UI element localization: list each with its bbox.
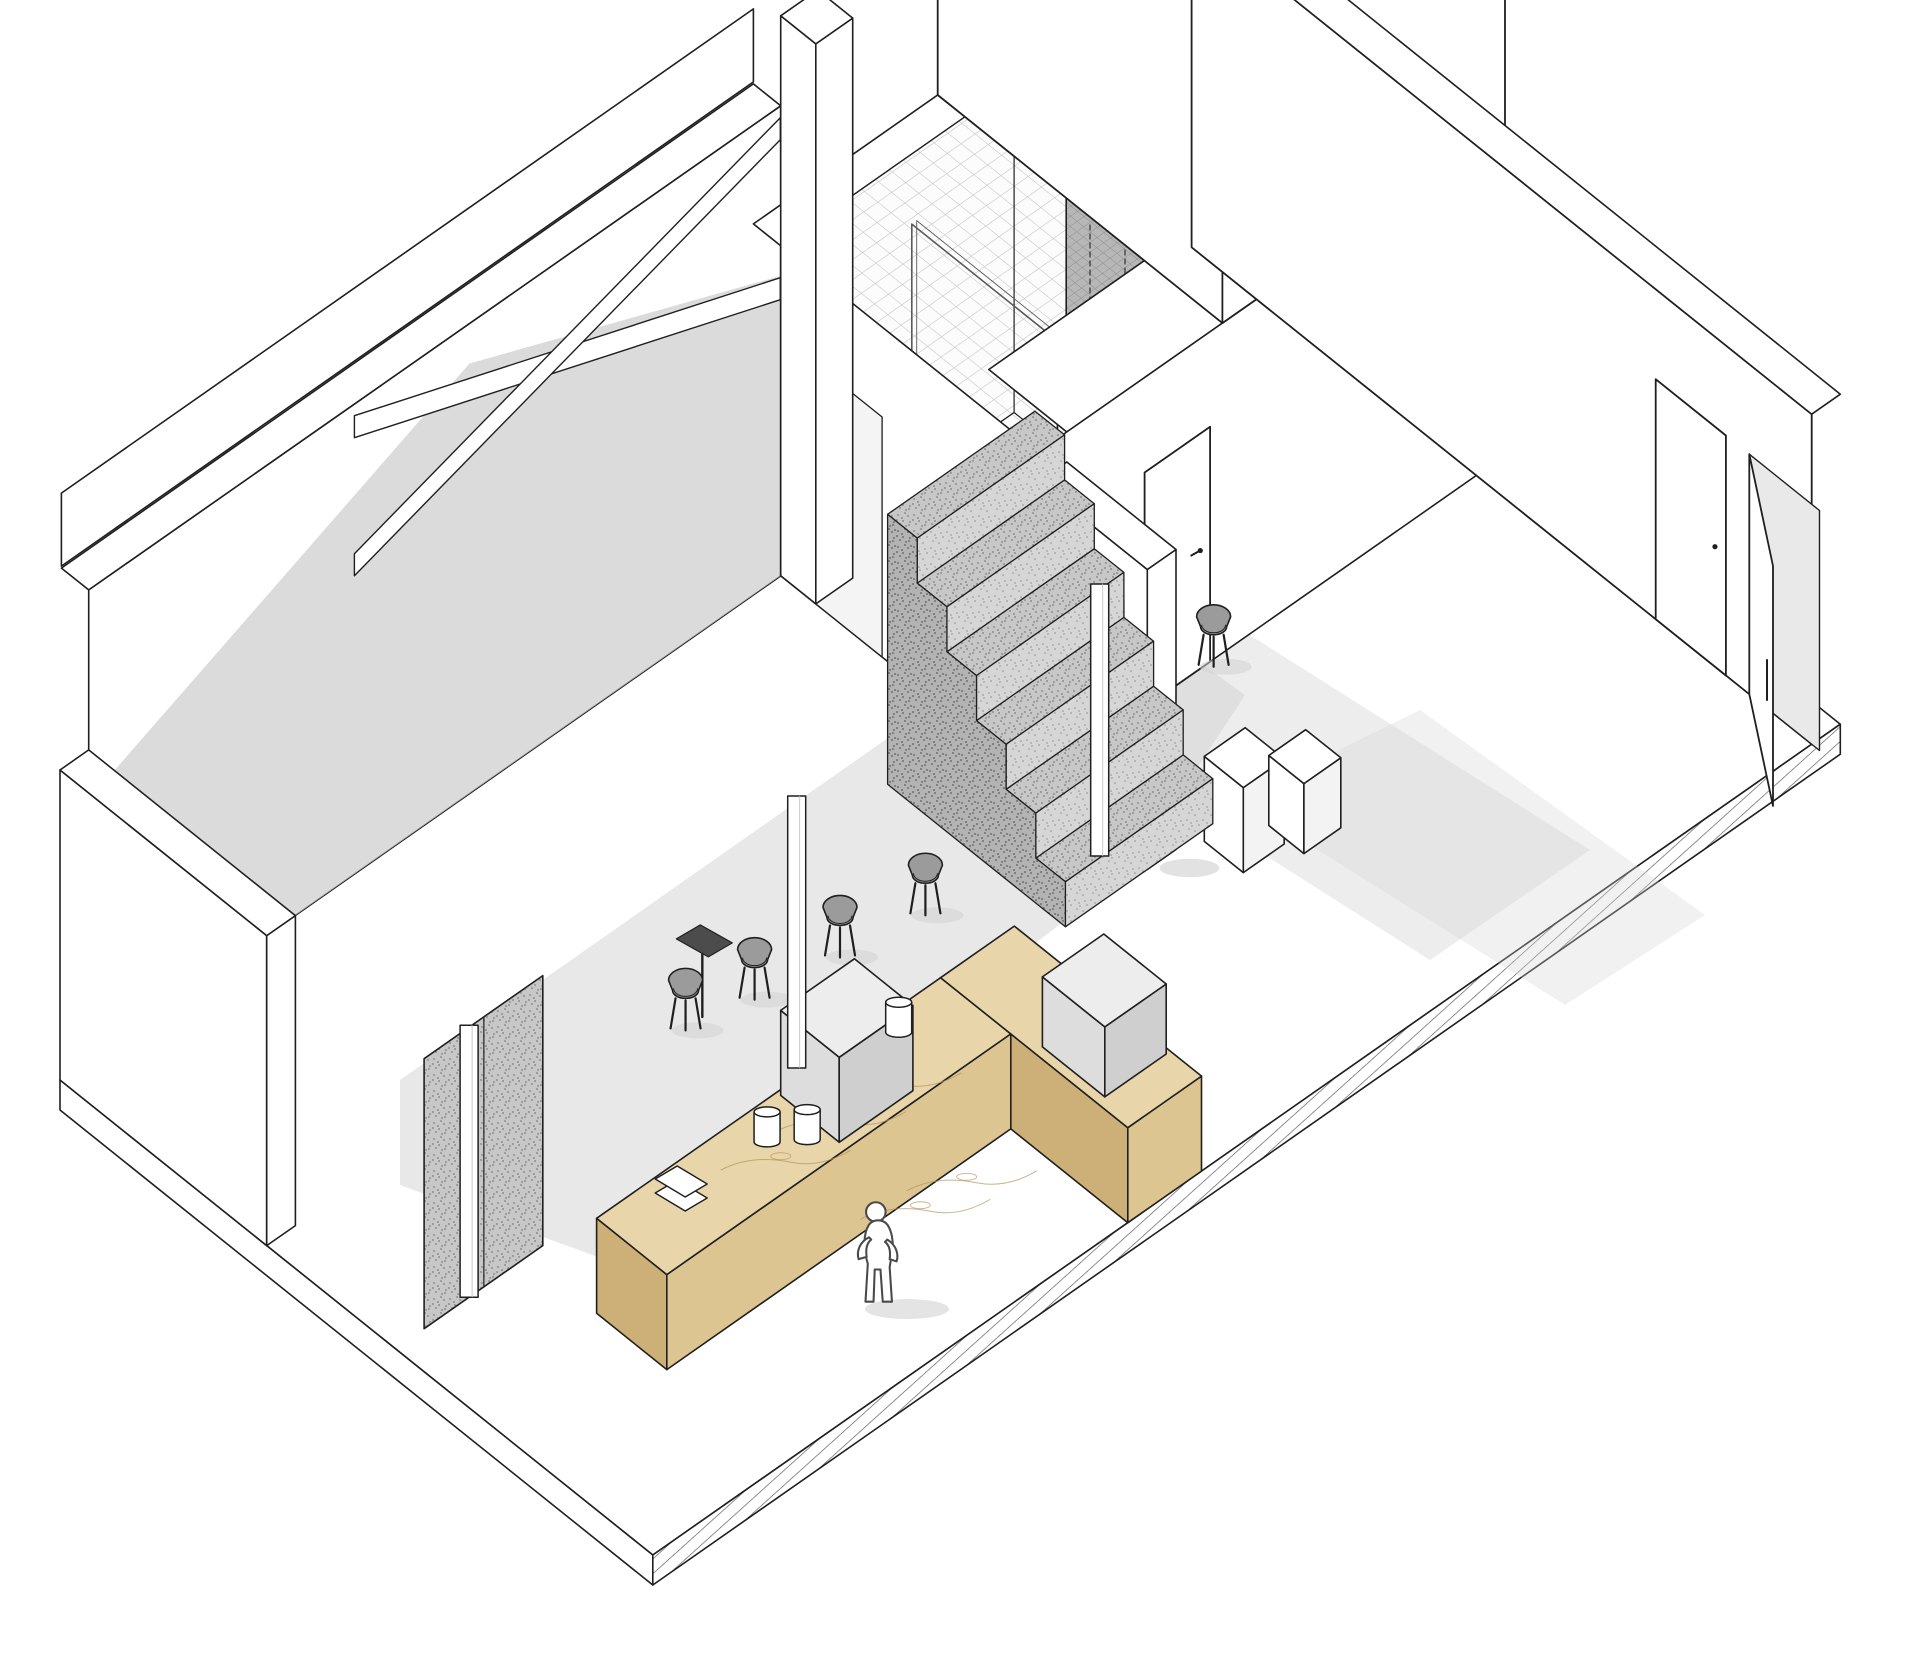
structural-column (781, 0, 853, 604)
cafe-axonometric-drawing: Two-level cafe interior axonometric cuta… (0, 0, 1920, 1671)
potted-plant (1160, 859, 1220, 877)
axonometric-scene (0, 0, 1920, 1671)
ground-plants (1160, 859, 1220, 877)
cup-cylinder (754, 1107, 780, 1147)
cup-cylinder (886, 997, 912, 1037)
cup-cylinder (794, 1105, 820, 1145)
